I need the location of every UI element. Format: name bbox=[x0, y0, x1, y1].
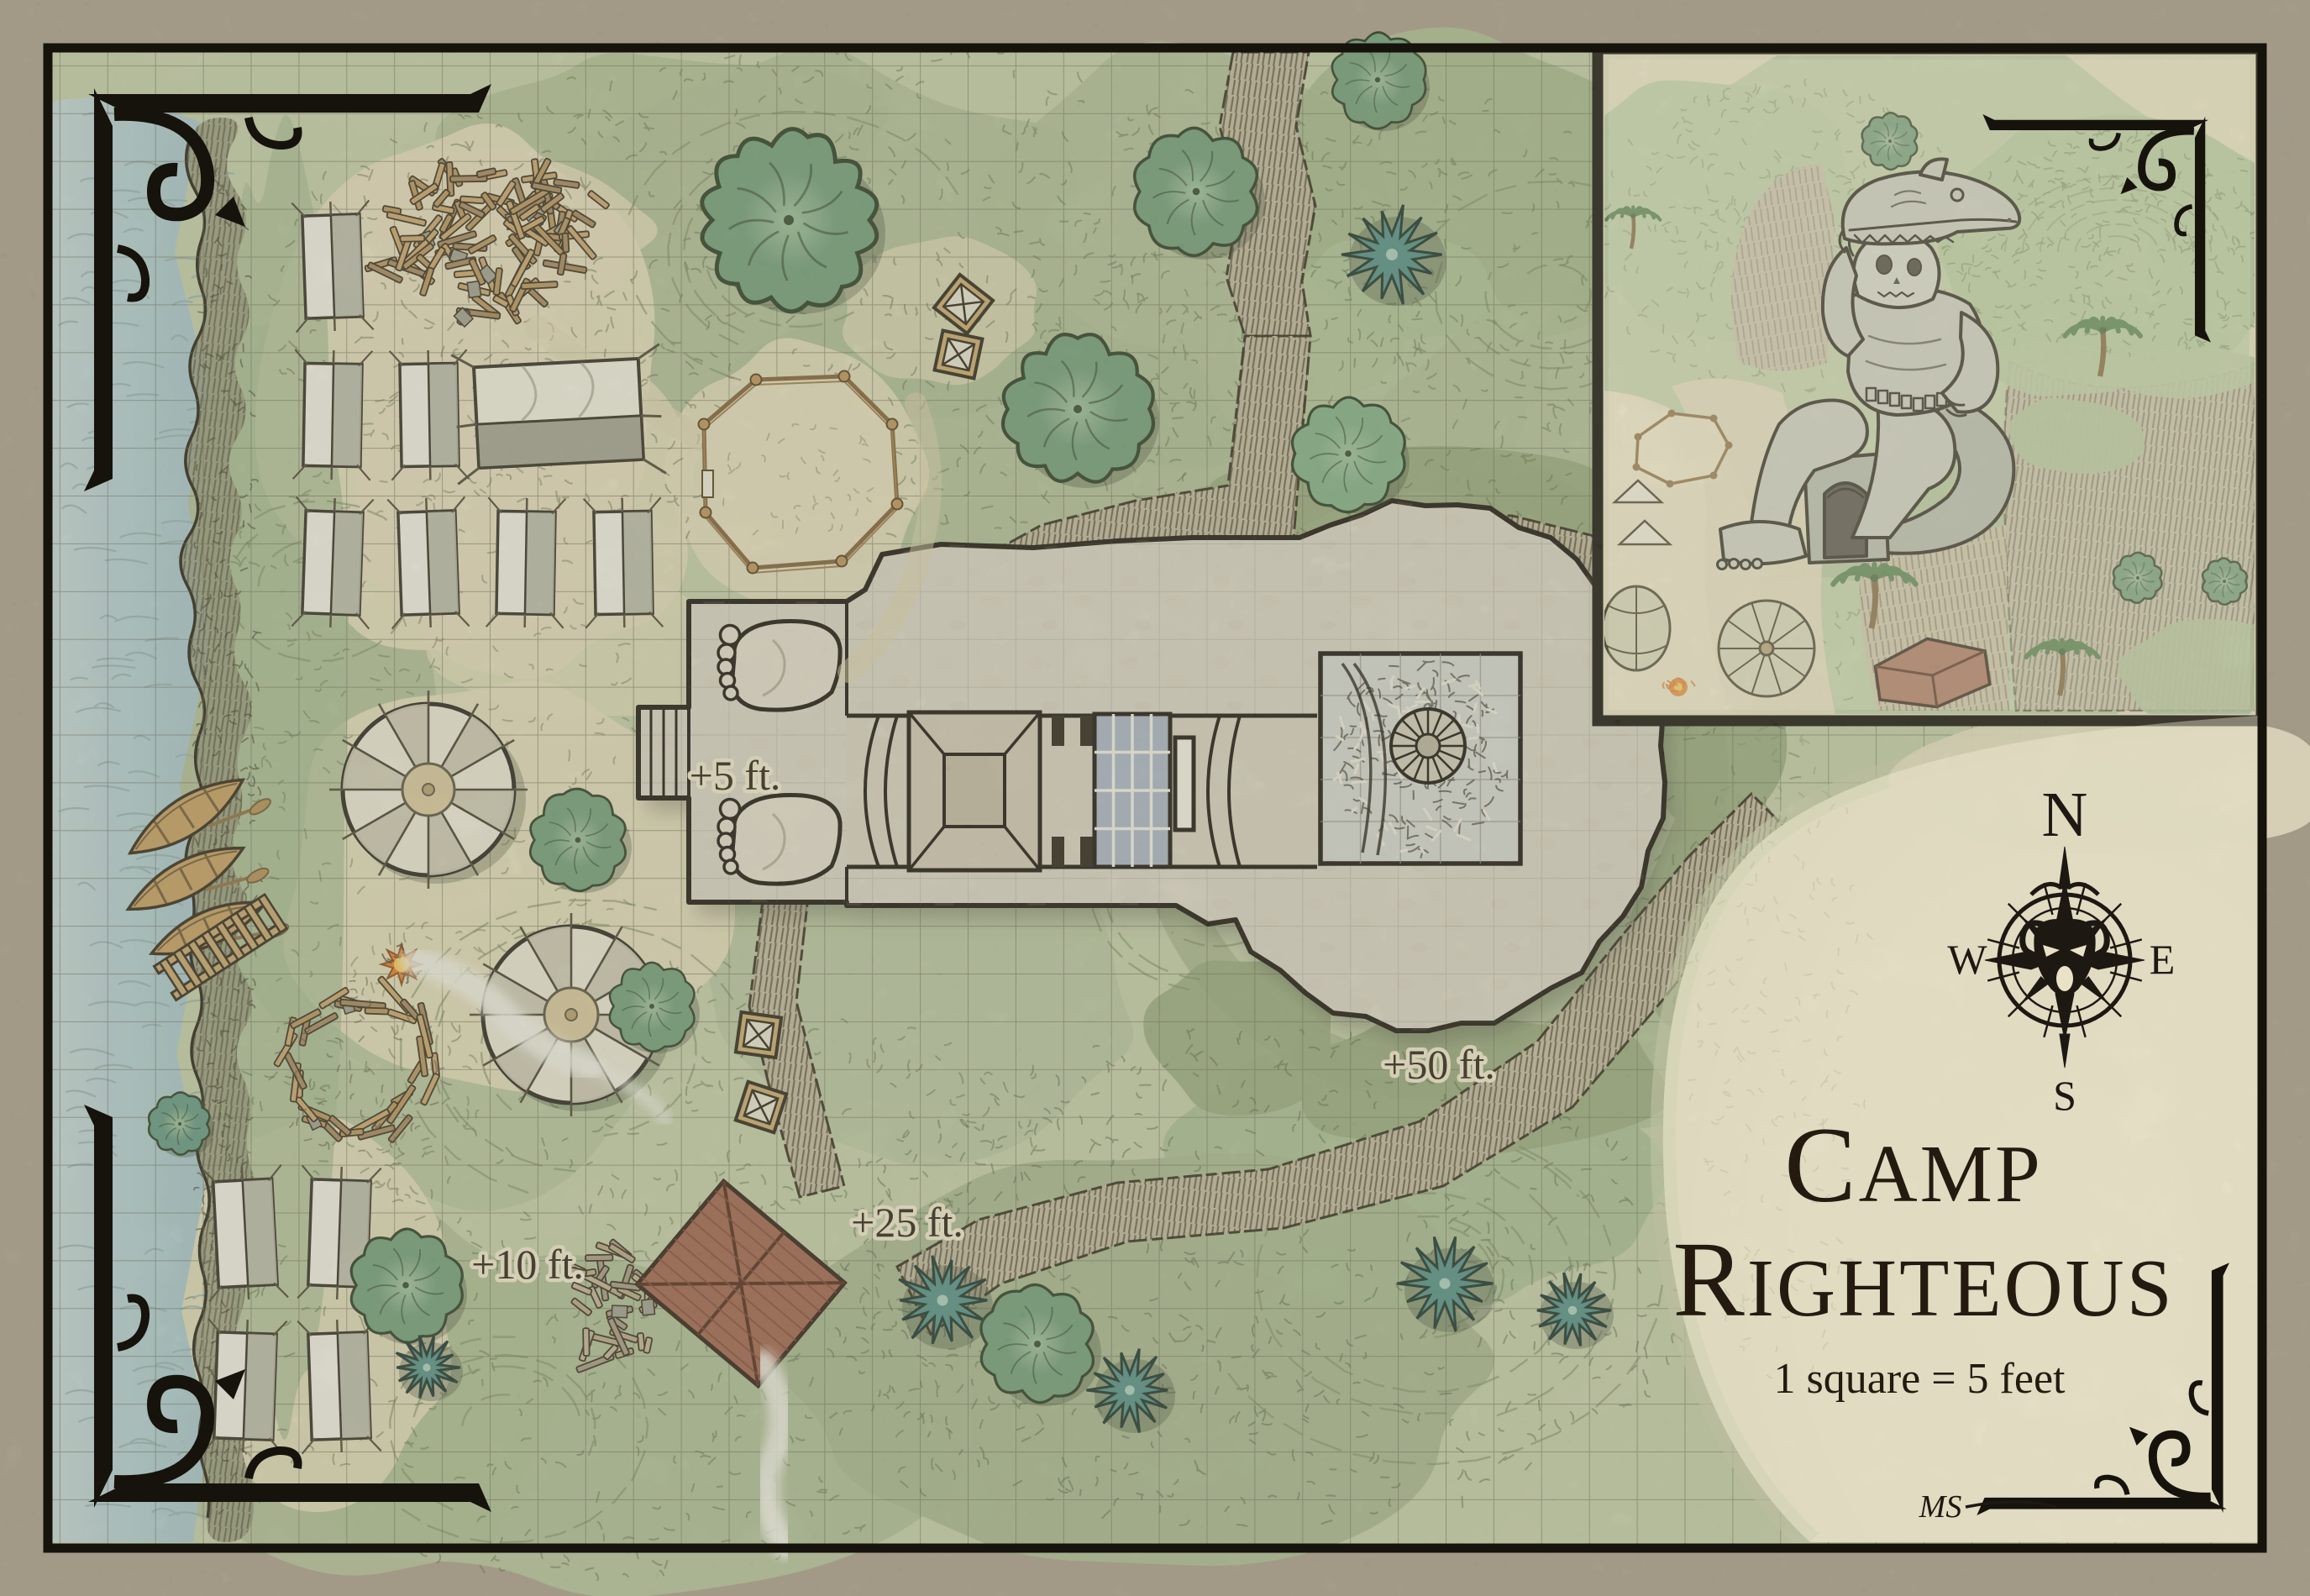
svg-text:E: E bbox=[2150, 936, 2176, 983]
svg-text:MS: MS bbox=[1919, 1489, 1962, 1525]
svg-text:S: S bbox=[2053, 1072, 2076, 1119]
svg-text:N: N bbox=[2042, 780, 2088, 850]
svg-text:1 square = 5 feet: 1 square = 5 feet bbox=[1774, 1355, 2066, 1403]
svg-text:W: W bbox=[1947, 936, 1987, 983]
